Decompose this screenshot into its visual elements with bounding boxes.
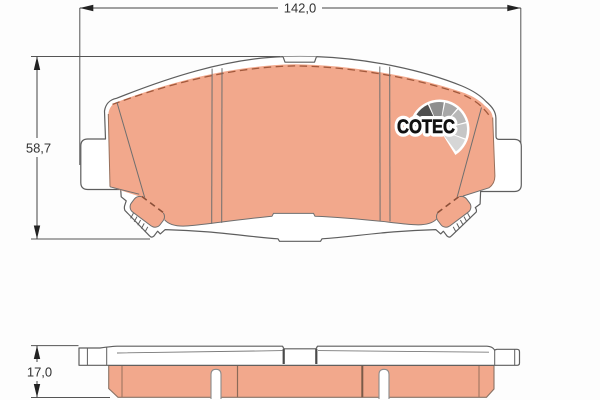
svg-text:17,0: 17,0 [27, 365, 52, 380]
svg-text:COTEC: COTEC [397, 116, 455, 138]
svg-text:58,7: 58,7 [26, 141, 51, 156]
svg-text:142,0: 142,0 [284, 1, 317, 16]
